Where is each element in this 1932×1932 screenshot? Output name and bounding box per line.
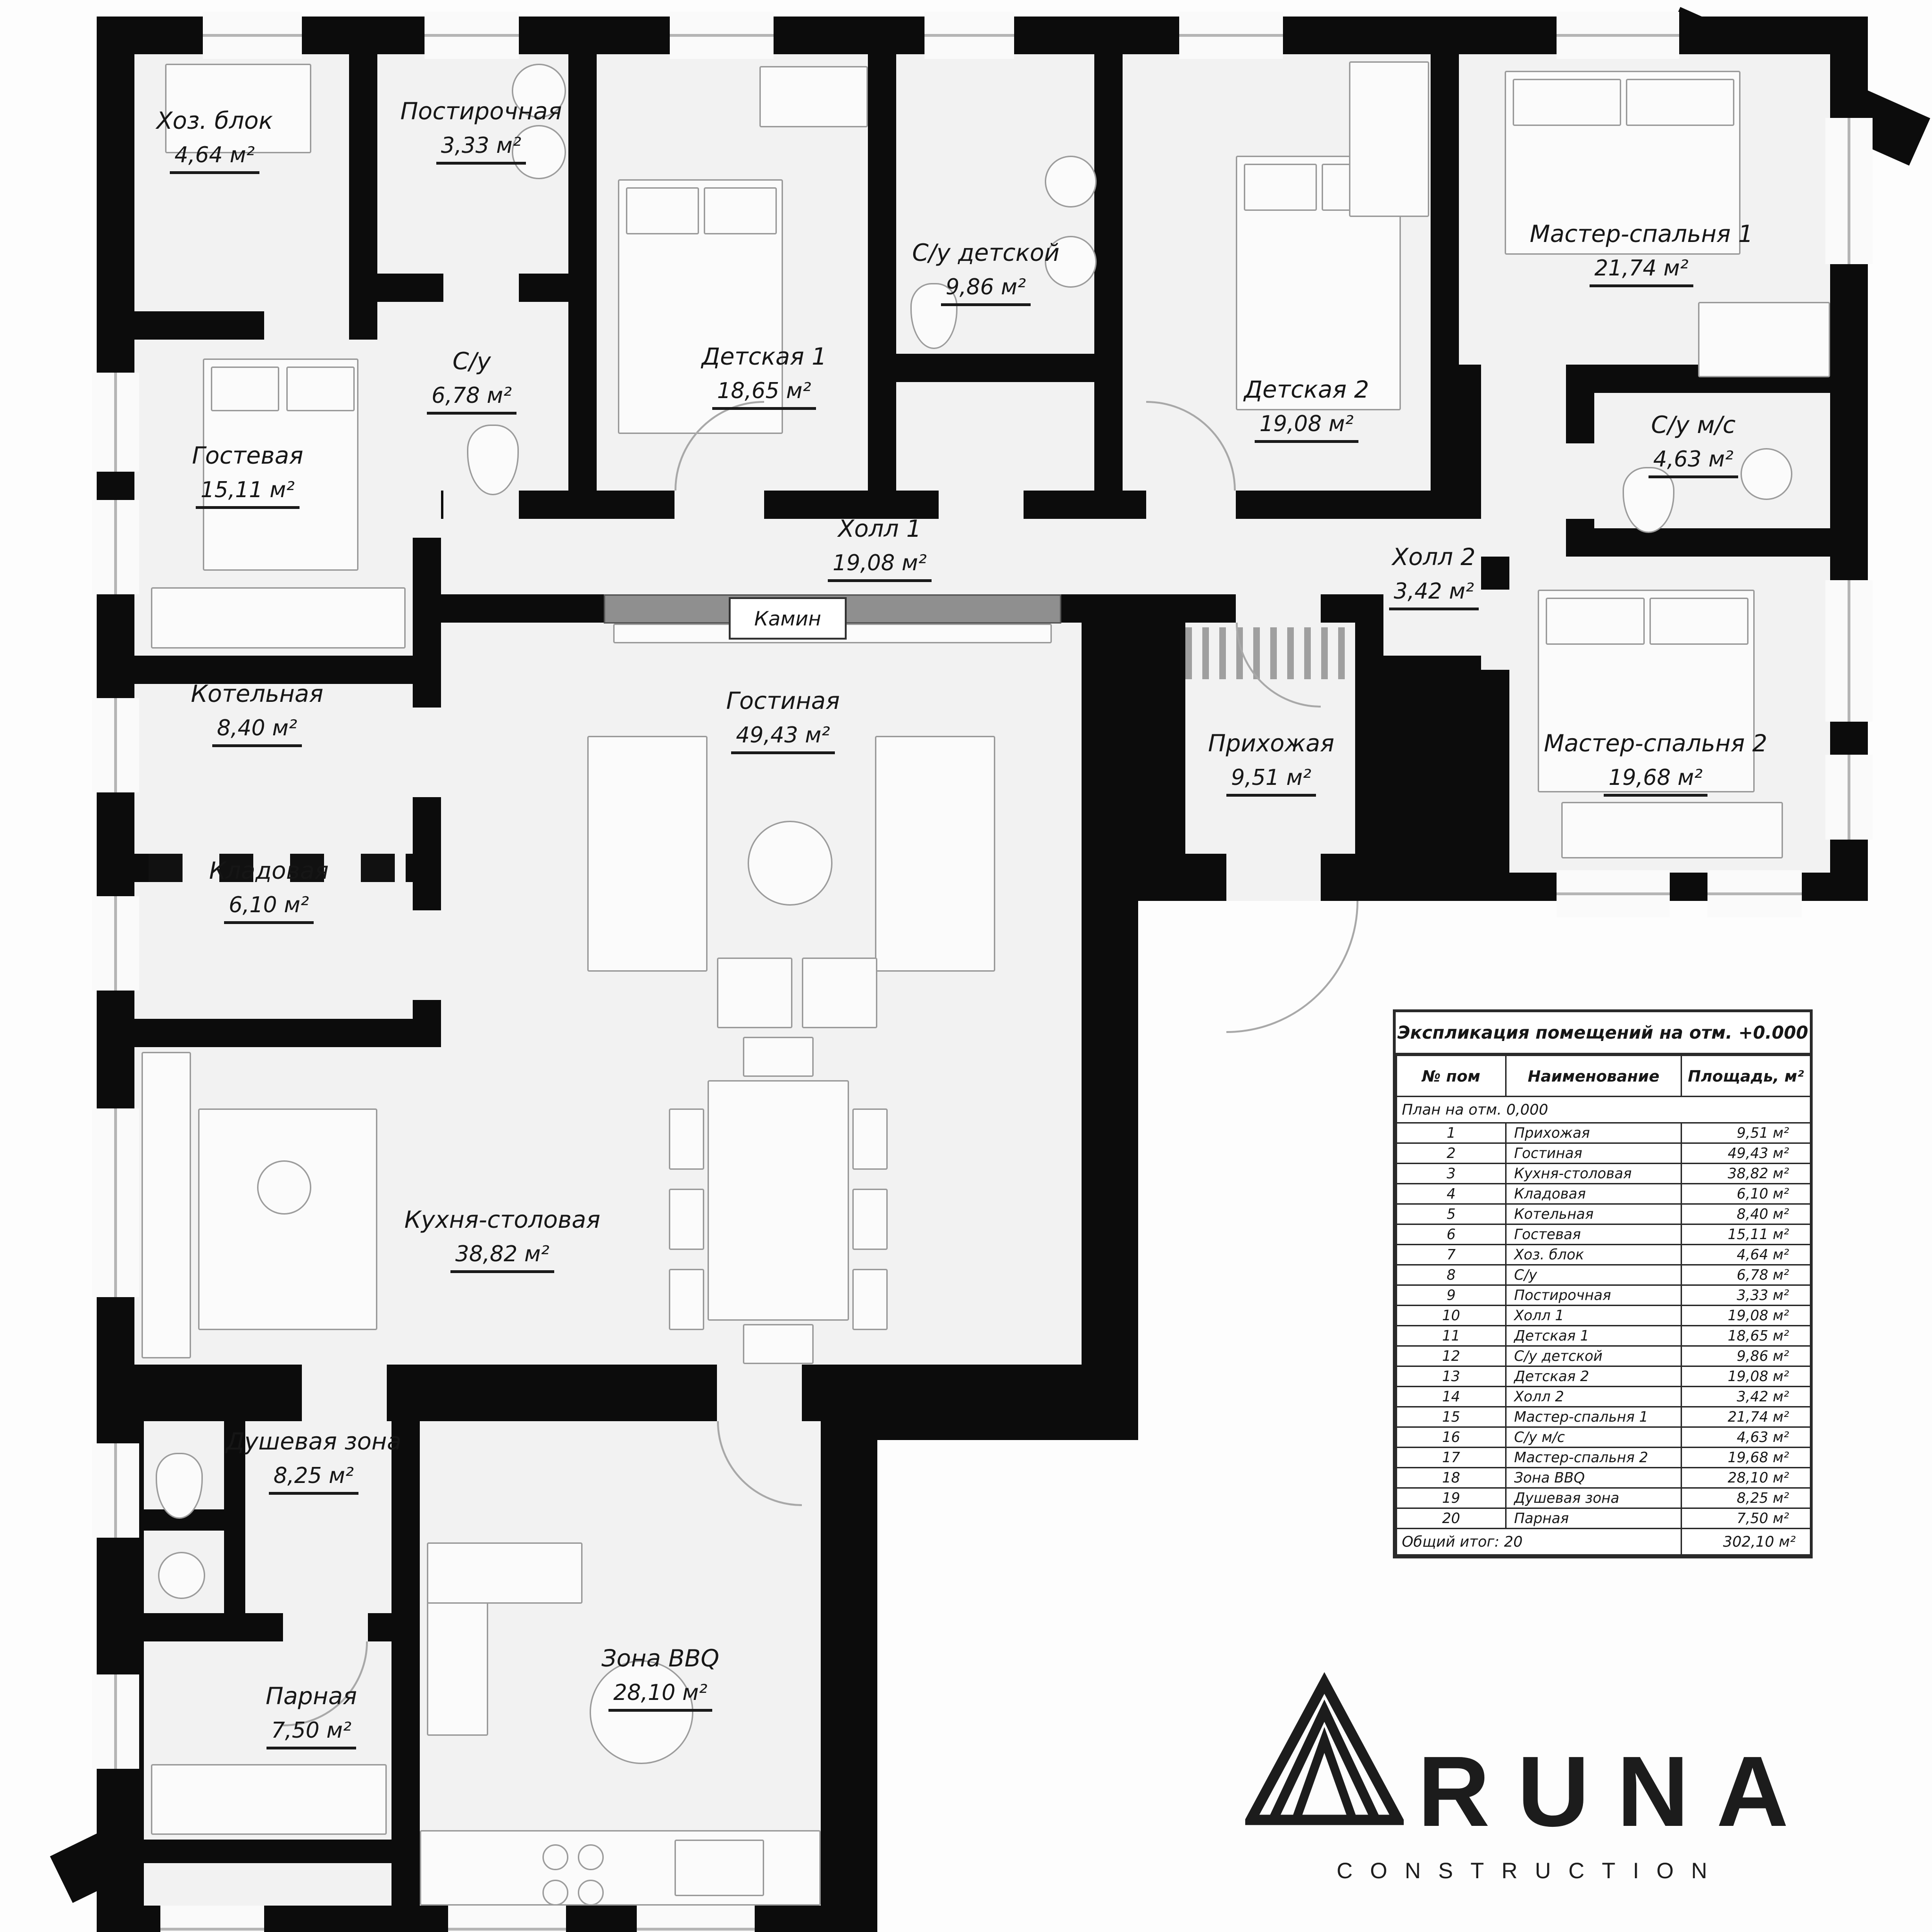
legend-row: 1Прихожая9,51 м²	[1397, 1123, 1811, 1143]
sink	[1045, 156, 1097, 208]
legend-total-label: Общий итог: 20	[1397, 1529, 1682, 1555]
window	[1825, 118, 1873, 264]
door-opening	[264, 311, 349, 340]
pillow	[1626, 79, 1734, 126]
chair	[743, 1037, 814, 1077]
legend-room-number: 15	[1397, 1407, 1506, 1427]
legend-room-name: Детская 2	[1506, 1366, 1682, 1387]
pillow	[626, 187, 699, 234]
legend-room-area: 7,50 м²	[1682, 1508, 1811, 1529]
room-name: Постирочная	[292, 97, 670, 126]
armchair	[802, 958, 877, 1028]
legend-room-name: Душевая зона	[1506, 1488, 1682, 1508]
chair	[669, 1269, 704, 1330]
bench	[151, 1764, 387, 1835]
room-label-post: Постирочная3,33 м²	[292, 97, 670, 165]
legend-room-area: 8,40 м²	[1682, 1204, 1811, 1224]
legend-room-name: Кухня-столовая	[1506, 1164, 1682, 1184]
legend-row: 8С/у6,78 м²	[1397, 1265, 1811, 1285]
room-area: 7,50 м²	[266, 1716, 356, 1750]
room-area: 9,86 м²	[941, 273, 1031, 307]
door-opening	[717, 1365, 802, 1421]
legend-row: 20Парная7,50 м²	[1397, 1508, 1811, 1529]
room-label-sudet: С/у детской9,86 м²	[797, 238, 1174, 306]
pillow	[211, 366, 279, 411]
room-name: Парная	[123, 1682, 500, 1711]
legend-room-name: Мастер-спальня 2	[1506, 1448, 1682, 1468]
counter	[142, 1052, 191, 1358]
legend-row: 13Детская 219,08 м²	[1397, 1366, 1811, 1387]
legend-row: 16С/у м/с4,63 м²	[1397, 1427, 1811, 1448]
room-name: С/у детской	[797, 238, 1174, 268]
window-glass-line	[203, 34, 302, 37]
chair	[669, 1108, 704, 1170]
window-glass-line	[160, 1928, 264, 1931]
coffee-table	[748, 821, 833, 906]
legend-room-number: 5	[1397, 1204, 1506, 1224]
room-name: Холл 1	[691, 514, 1068, 544]
window	[1557, 12, 1679, 59]
room-area: 49,43 м²	[731, 721, 834, 755]
room-area: 6,10 м²	[224, 891, 314, 924]
legend-row: 18Зона BBQ28,10 м²	[1397, 1468, 1811, 1488]
legend-row: 19Душевая зона8,25 м²	[1397, 1488, 1811, 1508]
legend-row: 17Мастер-спальня 219,68 м²	[1397, 1448, 1811, 1468]
logo-subtitle-text: CONSTRUCTION	[1245, 1857, 1816, 1883]
room-area: 6,78 м²	[427, 381, 516, 415]
legend-room-name: Кладовая	[1506, 1184, 1682, 1204]
legend-row: 7Хоз. блок4,64 м²	[1397, 1245, 1811, 1265]
window-glass-line	[637, 1928, 755, 1931]
legend-row: 3Кухня-столовая38,82 м²	[1397, 1164, 1811, 1184]
window	[92, 1108, 139, 1297]
legend-room-name: С/у	[1506, 1265, 1682, 1285]
dining-table	[708, 1080, 849, 1321]
legend-col-number: № пом	[1397, 1056, 1506, 1097]
legend-room-area: 38,82 м²	[1682, 1164, 1811, 1184]
legend-room-area: 4,64 м²	[1682, 1245, 1811, 1265]
legend-row: 2Гостиная49,43 м²	[1397, 1143, 1811, 1164]
room-area: 4,64 м²	[170, 141, 259, 175]
window	[425, 12, 519, 59]
legend-room-name: Парная	[1506, 1508, 1682, 1529]
window-glass-line	[1848, 580, 1850, 722]
legend-col-area: Площадь, м²	[1682, 1056, 1811, 1097]
room-area: 8,40 м²	[212, 714, 302, 748]
window	[670, 12, 774, 59]
room-area: 19,08 м²	[828, 549, 931, 583]
room-name: Зона BBQ	[472, 1644, 849, 1674]
wardrobe	[1349, 61, 1429, 217]
window-glass-line	[1179, 34, 1283, 37]
door-opening	[283, 1613, 368, 1641]
legend-room-area: 8,25 м²	[1682, 1488, 1811, 1508]
legend-room-number: 6	[1397, 1224, 1506, 1245]
legend-room-name: Детская 1	[1506, 1326, 1682, 1346]
legend-room-area: 9,51 м²	[1682, 1123, 1811, 1143]
legend-room-area: 18,65 м²	[1682, 1326, 1811, 1346]
legend-room-number: 10	[1397, 1306, 1506, 1326]
room-name: Мастер-спальня 1	[1453, 219, 1830, 249]
door-opening	[302, 1365, 387, 1421]
room-legend-table: Экспликация помещений на отм. +0.000 № п…	[1393, 1009, 1813, 1558]
legend-room-area: 19,08 м²	[1682, 1366, 1811, 1387]
room-area: 18,65 м²	[712, 376, 816, 410]
room-label-sums: С/у м/с4,63 м²	[1505, 410, 1882, 478]
room-label-kladovaya: Кладовая6,10 м²	[80, 856, 458, 924]
legend-room-name: Гостиная	[1506, 1143, 1682, 1164]
room-label-prihozhaya: Прихожая9,51 м²	[1083, 729, 1460, 797]
legend-room-number: 3	[1397, 1164, 1506, 1184]
legend-row: 5Котельная8,40 м²	[1397, 1204, 1811, 1224]
legend-room-name: Зона BBQ	[1506, 1468, 1682, 1488]
room-name: Кладовая	[80, 856, 458, 886]
room-name: Душевая зона	[125, 1427, 502, 1457]
room-label-hall2: Холл 23,42 м²	[1245, 542, 1623, 610]
legend-row: 6Гостевая15,11 м²	[1397, 1224, 1811, 1245]
legend-room-area: 9,86 м²	[1682, 1346, 1811, 1366]
desk	[1698, 302, 1830, 377]
legend-row: 15Мастер-спальня 121,74 м²	[1397, 1407, 1811, 1427]
chair	[852, 1189, 888, 1250]
legend-row: 12С/у детской9,86 м²	[1397, 1346, 1811, 1366]
room-name: С/у м/с	[1505, 410, 1882, 440]
legend-room-number: 12	[1397, 1346, 1506, 1366]
door-opening	[443, 274, 519, 302]
room-label-dush: Душевая зона8,25 м²	[125, 1427, 502, 1495]
room-name: Мастер-спальня 2	[1467, 729, 1844, 758]
armchair	[717, 958, 792, 1028]
sink	[257, 1160, 311, 1215]
burner	[578, 1844, 604, 1870]
window	[1179, 12, 1283, 59]
room-area: 19,08 м²	[1255, 409, 1358, 443]
wall-partition	[441, 594, 604, 623]
window	[92, 500, 139, 594]
burner	[542, 1844, 568, 1870]
room-area: 28,10 м²	[608, 1678, 712, 1712]
window	[160, 1906, 264, 1932]
legend-room-name: Хоз. блок	[1506, 1245, 1682, 1265]
room-label-parnaya: Парная7,50 м²	[123, 1682, 500, 1749]
legend-room-number: 16	[1397, 1427, 1506, 1448]
desk	[759, 66, 868, 127]
room-label-bbq: Зона BBQ28,10 м²	[472, 1644, 849, 1712]
legend-room-number: 2	[1397, 1143, 1506, 1164]
legend-room-area: 49,43 м²	[1682, 1143, 1811, 1164]
pillow	[1513, 79, 1621, 126]
room-area: 9,51 м²	[1226, 763, 1316, 797]
legend-room-number: 17	[1397, 1448, 1506, 1468]
legend-row: 11Детская 118,65 м²	[1397, 1326, 1811, 1346]
room-area: 3,42 м²	[1389, 577, 1479, 611]
legend-room-area: 19,68 м²	[1682, 1448, 1811, 1468]
window-glass-line	[1848, 755, 1850, 840]
room-name: Гостевая	[59, 441, 436, 471]
legend-total-value: 302,10 м²	[1682, 1529, 1811, 1555]
burner	[578, 1880, 604, 1906]
legend-room-area: 19,08 м²	[1682, 1306, 1811, 1326]
legend-room-number: 18	[1397, 1468, 1506, 1488]
room-label-hall1: Холл 119,08 м²	[691, 514, 1068, 582]
chair	[743, 1324, 814, 1364]
chair	[852, 1108, 888, 1170]
fireplace-label-box: Камин	[729, 597, 847, 640]
room-floor	[144, 1863, 391, 1906]
pillow	[704, 187, 777, 234]
room-area: 3,33 м²	[436, 131, 526, 165]
room-label-det2: Детская 219,08 м²	[1118, 375, 1495, 443]
sofa	[875, 736, 995, 972]
room-name: Детская 1	[575, 342, 953, 372]
burner	[542, 1880, 568, 1906]
window-glass-line	[1557, 892, 1670, 895]
floor-plan-sheet: КаминХоз. блок4,64 м²Постирочная3,33 м²С…	[0, 0, 1932, 1932]
legend-title: Экспликация помещений на отм. +0.000	[1396, 1012, 1810, 1055]
room-name: Котельная	[68, 679, 446, 709]
room-label-det1: Детская 118,65 м²	[575, 342, 953, 410]
legend-room-name: С/у детской	[1506, 1346, 1682, 1366]
legend-room-area: 6,10 м²	[1682, 1184, 1811, 1204]
fireplace-label: Камин	[754, 607, 821, 630]
door-opening	[1146, 491, 1236, 519]
room-label-master2: Мастер-спальня 219,68 м²	[1467, 729, 1844, 797]
room-name: Детская 2	[1118, 375, 1495, 405]
room-area: 15,11 м²	[196, 475, 299, 509]
room-area: 4,63 м²	[1649, 445, 1738, 479]
legend-room-number: 13	[1397, 1366, 1506, 1387]
legend-room-name: Холл 1	[1506, 1306, 1682, 1326]
legend-room-number: 1	[1397, 1123, 1506, 1143]
logo-brand-text: RUNA	[1418, 1747, 1816, 1837]
room-area: 8,25 м²	[269, 1461, 358, 1495]
legend-col-name: Наименование	[1506, 1056, 1682, 1097]
legend-room-area: 21,74 м²	[1682, 1407, 1811, 1427]
window-glass-line	[114, 1108, 117, 1297]
legend-room-name: Гостевая	[1506, 1224, 1682, 1245]
room-label-kuhnya: Кухня-столовая38,82 м²	[314, 1205, 691, 1273]
legend-room-area: 3,33 м²	[1682, 1285, 1811, 1306]
room-name: Гостиная	[594, 686, 972, 716]
window-glass-line	[1848, 118, 1850, 264]
legend-row: 10Холл 119,08 м²	[1397, 1306, 1811, 1326]
legend-row: 9Постирочная3,33 м²	[1397, 1285, 1811, 1306]
legend-room-name: Прихожая	[1506, 1123, 1682, 1143]
sink	[158, 1552, 205, 1599]
wardrobe	[151, 587, 406, 649]
dresser	[1561, 802, 1783, 858]
sink	[675, 1840, 764, 1896]
window-glass-line	[1707, 892, 1802, 895]
room-name: Кухня-столовая	[314, 1205, 691, 1235]
legend-room-name: Холл 2	[1506, 1387, 1682, 1407]
room-label-gostinaya: Гостиная49,43 м²	[594, 686, 972, 754]
room-name: Прихожая	[1083, 729, 1460, 758]
window-glass-line	[114, 500, 117, 594]
legend-room-area: 15,11 м²	[1682, 1224, 1811, 1245]
legend-row: 14Холл 23,42 м²	[1397, 1387, 1811, 1407]
legend-room-number: 19	[1397, 1488, 1506, 1508]
legend-row: 4Кладовая6,10 м²	[1397, 1184, 1811, 1204]
room-area: 21,74 м²	[1590, 254, 1693, 288]
window	[1557, 870, 1670, 917]
legend-room-area: 28,10 м²	[1682, 1468, 1811, 1488]
legend-room-name: С/у м/с	[1506, 1427, 1682, 1448]
legend-room-area: 6,78 м²	[1682, 1265, 1811, 1285]
window-glass-line	[924, 34, 1014, 37]
window-glass-line	[448, 1928, 566, 1931]
corner-sofa	[427, 1542, 583, 1604]
legend-section-row: План на отм. 0,000	[1397, 1097, 1811, 1123]
legend-room-area: 3,42 м²	[1682, 1387, 1811, 1407]
chair	[852, 1269, 888, 1330]
legend-room-name: Постирочная	[1506, 1285, 1682, 1306]
legend-room-number: 11	[1397, 1326, 1506, 1346]
legend-room-name: Котельная	[1506, 1204, 1682, 1224]
window	[1825, 580, 1873, 722]
room-label-gostevaya: Гостевая15,11 м²	[59, 441, 436, 509]
room-area: 38,82 м²	[450, 1240, 554, 1274]
window	[1707, 870, 1802, 917]
pillow	[1244, 164, 1317, 211]
window-glass-line	[425, 34, 519, 37]
window	[448, 1906, 566, 1932]
window-glass-line	[670, 34, 774, 37]
legend-room-name: Мастер-спальня 1	[1506, 1407, 1682, 1427]
logo-mountain-icon	[1245, 1664, 1404, 1840]
window-glass-line	[114, 1443, 117, 1538]
company-logo: RUNA CONSTRUCTION	[1245, 1664, 1816, 1883]
pillow	[1649, 598, 1749, 645]
legend-room-number: 4	[1397, 1184, 1506, 1204]
door-opening	[443, 491, 519, 519]
legend-room-number: 20	[1397, 1508, 1506, 1529]
legend-room-number: 14	[1397, 1387, 1506, 1407]
window-glass-line	[1557, 34, 1679, 37]
floor-plan: КаминХоз. блок4,64 м²Постирочная3,33 м²С…	[0, 0, 1932, 1932]
room-label-kotelnaya: Котельная8,40 м²	[68, 679, 446, 747]
room-label-master1: Мастер-спальня 121,74 м²	[1453, 219, 1830, 287]
window	[203, 12, 302, 59]
window-glass-line	[114, 1674, 117, 1769]
door-opening	[1226, 854, 1321, 901]
window	[637, 1906, 755, 1932]
sofa	[587, 736, 708, 972]
room-name: Холл 2	[1245, 542, 1623, 572]
legend-room-number: 7	[1397, 1245, 1506, 1265]
legend-room-number: 9	[1397, 1285, 1506, 1306]
legend-room-number: 8	[1397, 1265, 1506, 1285]
room-area: 19,68 м²	[1604, 763, 1707, 797]
window	[924, 12, 1014, 59]
legend-room-area: 4,63 м²	[1682, 1427, 1811, 1448]
